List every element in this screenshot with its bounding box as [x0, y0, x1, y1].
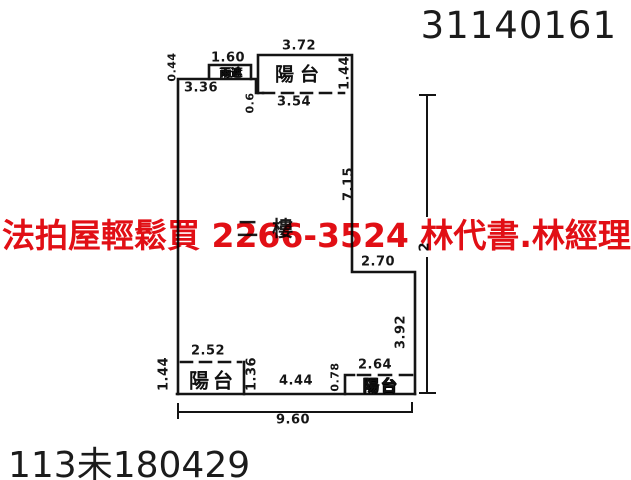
dim-balcony-top-depth: 1.44	[338, 56, 353, 90]
wall-balcony-right-side	[345, 375, 354, 394]
dim-right-wall-lower: 3.92	[394, 315, 409, 349]
dim-right-wall-upper: 7.15	[342, 167, 357, 201]
dim-balcony-right-width: 2.64	[358, 358, 392, 373]
dim-balcony-left-depth-outer: 1.44	[157, 357, 172, 391]
dim-bottom-middle-wall: 4.44	[279, 374, 313, 389]
dim-top-wall: 3.36	[184, 81, 218, 96]
dim-balcony-left-depth-inner: 1.36	[245, 357, 260, 391]
dim-rain-cover-height: 0.44	[166, 52, 179, 81]
dim-balcony-right-step: 0.78	[329, 362, 342, 391]
dim-balcony-left-width: 2.52	[191, 344, 225, 359]
balcony-top-label: 陽台	[275, 60, 325, 87]
rain-cover-label: 雨遮	[220, 64, 242, 80]
case-number-bottom: 113未180429	[8, 436, 250, 480]
reference-number-top: 31140161	[421, 4, 617, 47]
dim-total-width: 9.60	[276, 413, 310, 428]
watermark-ad-text: 法拍屋輕鬆買 2266-3524 林代書.林經理	[2, 215, 631, 257]
dim-top-step: 0.6	[244, 93, 257, 114]
scanned-floorplan-page: 0.44 1.60 3.36 0.6 3.72 1.44 3.54 7.15 2…	[0, 0, 631, 480]
dim-balcony-top-opening: 3.54	[277, 95, 311, 110]
dim-balcony-top-width: 3.72	[282, 39, 316, 54]
balcony-bottom-left-label: 陽台	[189, 365, 237, 394]
balcony-bottom-right-label: 陽台	[363, 372, 399, 396]
